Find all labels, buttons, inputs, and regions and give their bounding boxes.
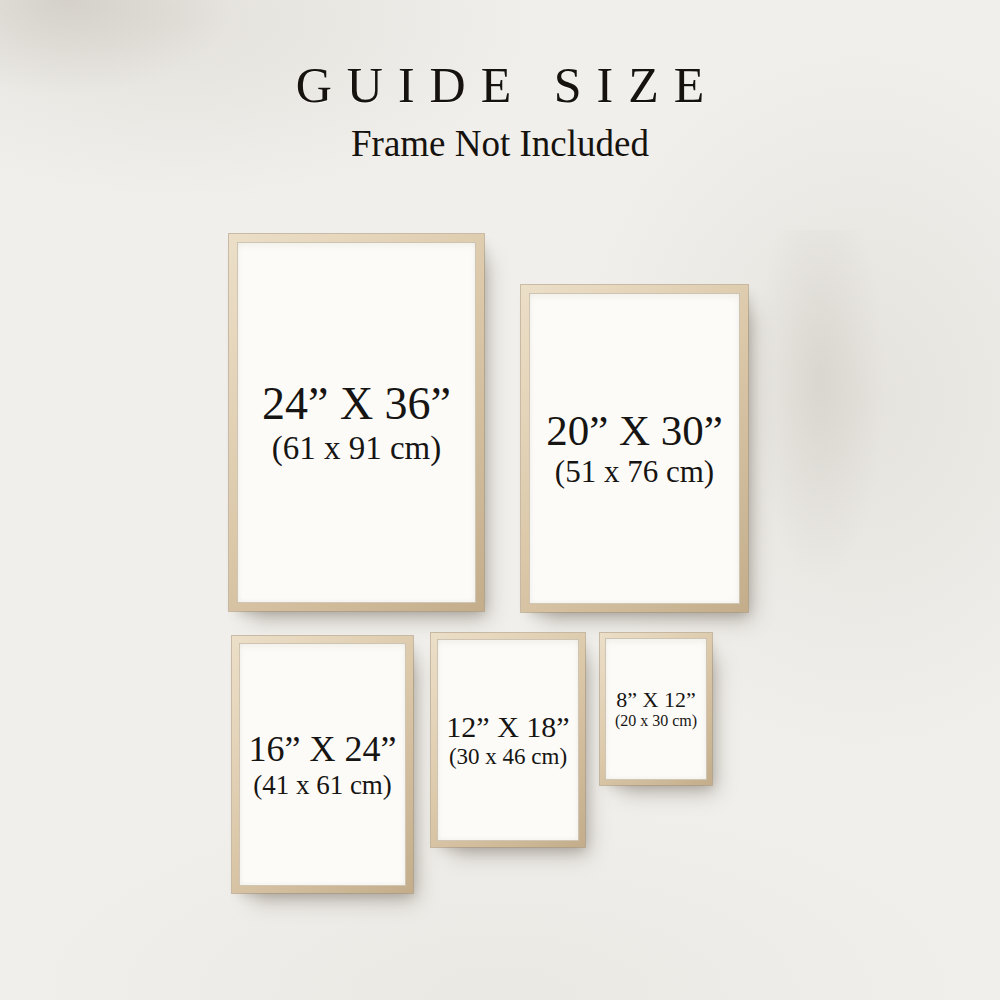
frame-12x18-paper: 12” X 18” (30 x 46 cm) [437,639,579,841]
size-label-inches: 12” X 18” [446,710,569,744]
frame-8x12-paper: 8” X 12” (20 x 30 cm) [605,638,707,780]
size-label-inches: 8” X 12” [616,688,695,713]
size-label-inches: 24” X 36” [262,378,451,430]
page-title: GUIDE SIZE [0,56,1000,114]
size-label-cm: (30 x 46 cm) [449,744,567,770]
frame-20x30-paper: 20” X 30” (51 x 76 cm) [529,293,740,604]
size-label-inches: 20” X 30” [546,407,723,455]
size-label-cm: (61 x 91 cm) [272,430,442,467]
size-label-cm: (41 x 61 cm) [253,770,392,800]
frame-16x24: 16” X 24” (41 x 61 cm) [232,636,413,893]
header: GUIDE SIZE Frame Not Included [0,56,1000,165]
frame-24x36: 24” X 36” (61 x 91 cm) [229,234,484,611]
frame-24x36-paper: 24” X 36” (61 x 91 cm) [237,242,476,603]
frame-16x24-paper: 16” X 24” (41 x 61 cm) [239,643,406,886]
page-subtitle: Frame Not Included [0,122,1000,165]
frame-8x12: 8” X 12” (20 x 30 cm) [600,633,712,785]
frame-12x18: 12” X 18” (30 x 46 cm) [431,633,585,847]
size-label-cm: (51 x 76 cm) [555,455,714,490]
wall-shadow-right [760,230,910,660]
size-label-cm: (20 x 30 cm) [615,712,697,730]
size-guide-poster: GUIDE SIZE Frame Not Included 24” X 36” … [0,0,1000,1000]
size-label-inches: 16” X 24” [249,729,397,769]
frame-20x30: 20” X 30” (51 x 76 cm) [521,285,748,612]
